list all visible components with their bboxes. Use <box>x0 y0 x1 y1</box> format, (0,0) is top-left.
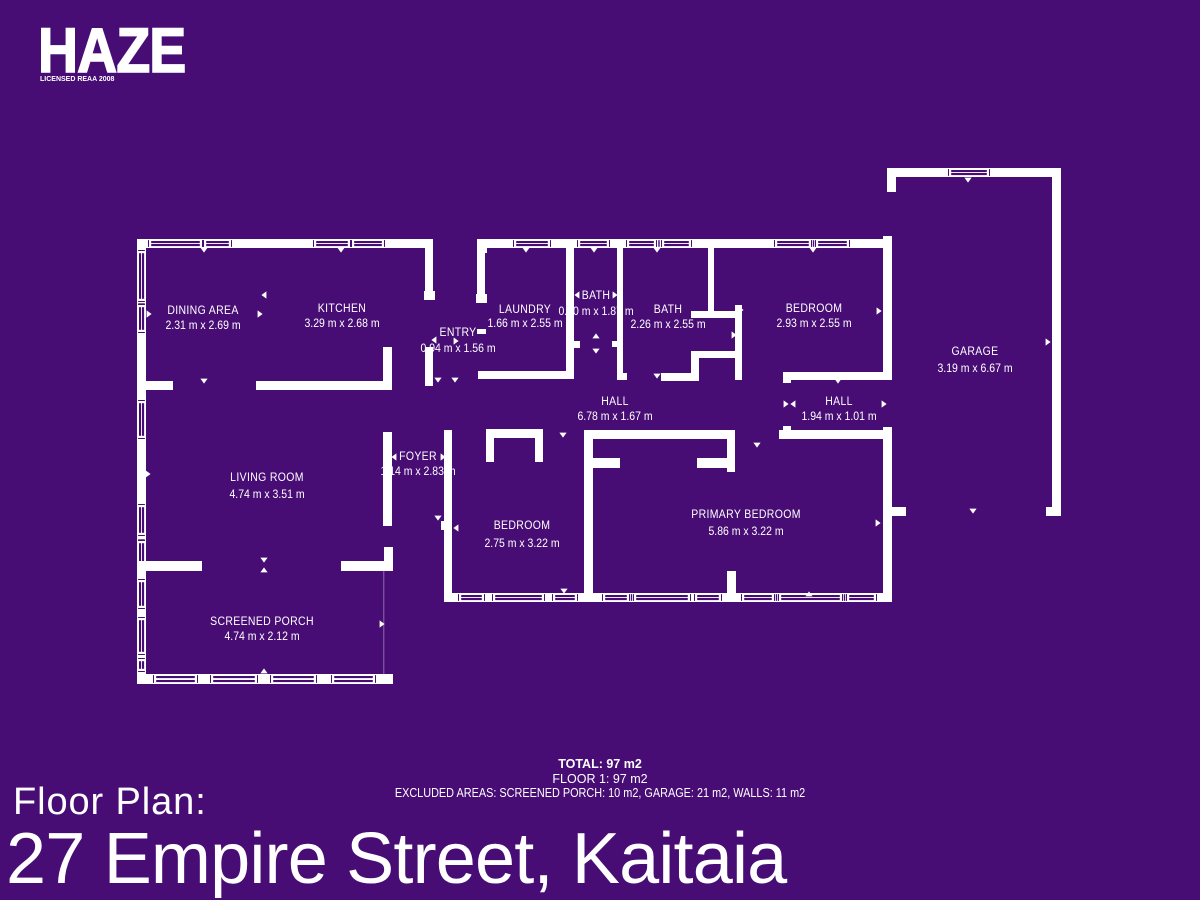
svg-text:HALL: HALL <box>601 396 629 409</box>
svg-text:GARAGE: GARAGE <box>952 346 999 359</box>
svg-text:PRIMARY BEDROOM: PRIMARY BEDROOM <box>691 509 801 522</box>
svg-text:6.78 m x 1.67 m: 6.78 m x 1.67 m <box>577 411 652 424</box>
svg-text:LAUNDRY: LAUNDRY <box>499 304 551 317</box>
svg-text:1.66 m x 2.55 m: 1.66 m x 2.55 m <box>487 318 562 331</box>
svg-text:2.75 m x 3.22 m: 2.75 m x 3.22 m <box>484 538 559 551</box>
svg-text:ENTRY: ENTRY <box>439 327 476 340</box>
svg-text:KITCHEN: KITCHEN <box>318 303 366 316</box>
svg-text:BATH: BATH <box>654 304 683 317</box>
svg-text:BEDROOM: BEDROOM <box>494 520 551 533</box>
svg-text:4.74 m x 3.51 m: 4.74 m x 3.51 m <box>229 489 304 502</box>
svg-text:2.93 m x 2.55 m: 2.93 m x 2.55 m <box>776 318 851 331</box>
svg-text:SCREENED PORCH: SCREENED PORCH <box>210 616 314 629</box>
svg-text:2.26 m x 2.55 m: 2.26 m x 2.55 m <box>630 319 705 332</box>
svg-text:BEDROOM: BEDROOM <box>786 303 843 316</box>
svg-text:LIVING ROOM: LIVING ROOM <box>230 472 304 485</box>
svg-text:FOYER: FOYER <box>399 451 437 464</box>
svg-text:HALL: HALL <box>825 396 853 409</box>
svg-text:5.86 m x 3.22 m: 5.86 m x 3.22 m <box>708 526 783 539</box>
svg-text:DINING AREA: DINING AREA <box>167 305 238 318</box>
svg-text:3.29 m x 2.68 m: 3.29 m x 2.68 m <box>304 318 379 331</box>
svg-text:BATH: BATH <box>582 290 611 303</box>
svg-text:2.31 m x 2.69 m: 2.31 m x 2.69 m <box>165 320 240 333</box>
svg-text:4.74 m x 2.12 m: 4.74 m x 2.12 m <box>224 631 299 644</box>
svg-text:3.19 m x 6.67 m: 3.19 m x 6.67 m <box>937 363 1012 376</box>
svg-text:1.94 m x 1.01 m: 1.94 m x 1.01 m <box>801 411 876 424</box>
